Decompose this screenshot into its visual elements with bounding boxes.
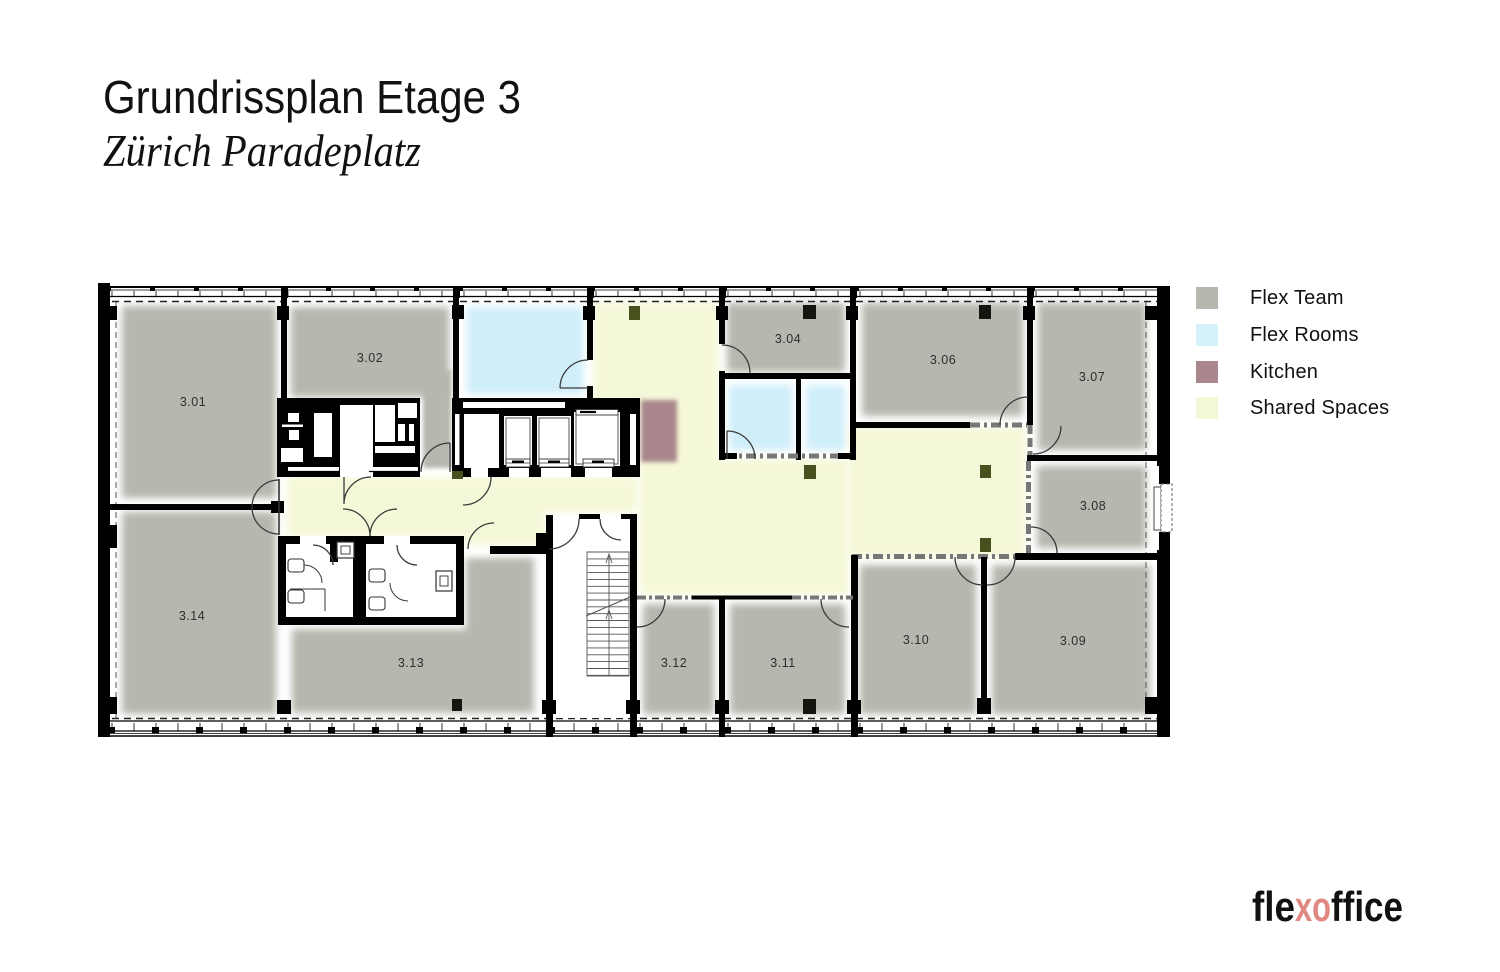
svg-text:xo: xo	[1295, 883, 1331, 930]
svg-text:Flex Rooms: Flex Rooms	[1250, 324, 1359, 346]
svg-text:ffice: ffice	[1331, 883, 1403, 930]
svg-text:3.12: 3.12	[661, 656, 687, 670]
svg-text:3.08: 3.08	[1080, 499, 1106, 513]
svg-text:Flex Team: Flex Team	[1250, 287, 1344, 309]
svg-text:3.09: 3.09	[1060, 634, 1086, 648]
svg-text:Zürich Paradeplatz: Zürich Paradeplatz	[103, 126, 421, 176]
svg-text:3.02: 3.02	[357, 351, 383, 365]
svg-text:Shared Spaces: Shared Spaces	[1250, 397, 1389, 419]
svg-text:3.04: 3.04	[775, 332, 801, 346]
svg-text:Kitchen: Kitchen	[1250, 361, 1318, 383]
svg-text:3.13: 3.13	[398, 656, 424, 670]
svg-text:3.14: 3.14	[179, 609, 205, 623]
svg-text:3.06: 3.06	[930, 353, 956, 367]
svg-text:fle: fle	[1252, 883, 1295, 930]
svg-text:3.10: 3.10	[903, 633, 929, 647]
svg-text:3.07: 3.07	[1079, 370, 1105, 384]
svg-text:3.11: 3.11	[770, 656, 795, 670]
svg-text:3.01: 3.01	[180, 395, 206, 409]
svg-text:Grundrissplan Etage 3: Grundrissplan Etage 3	[103, 71, 521, 123]
